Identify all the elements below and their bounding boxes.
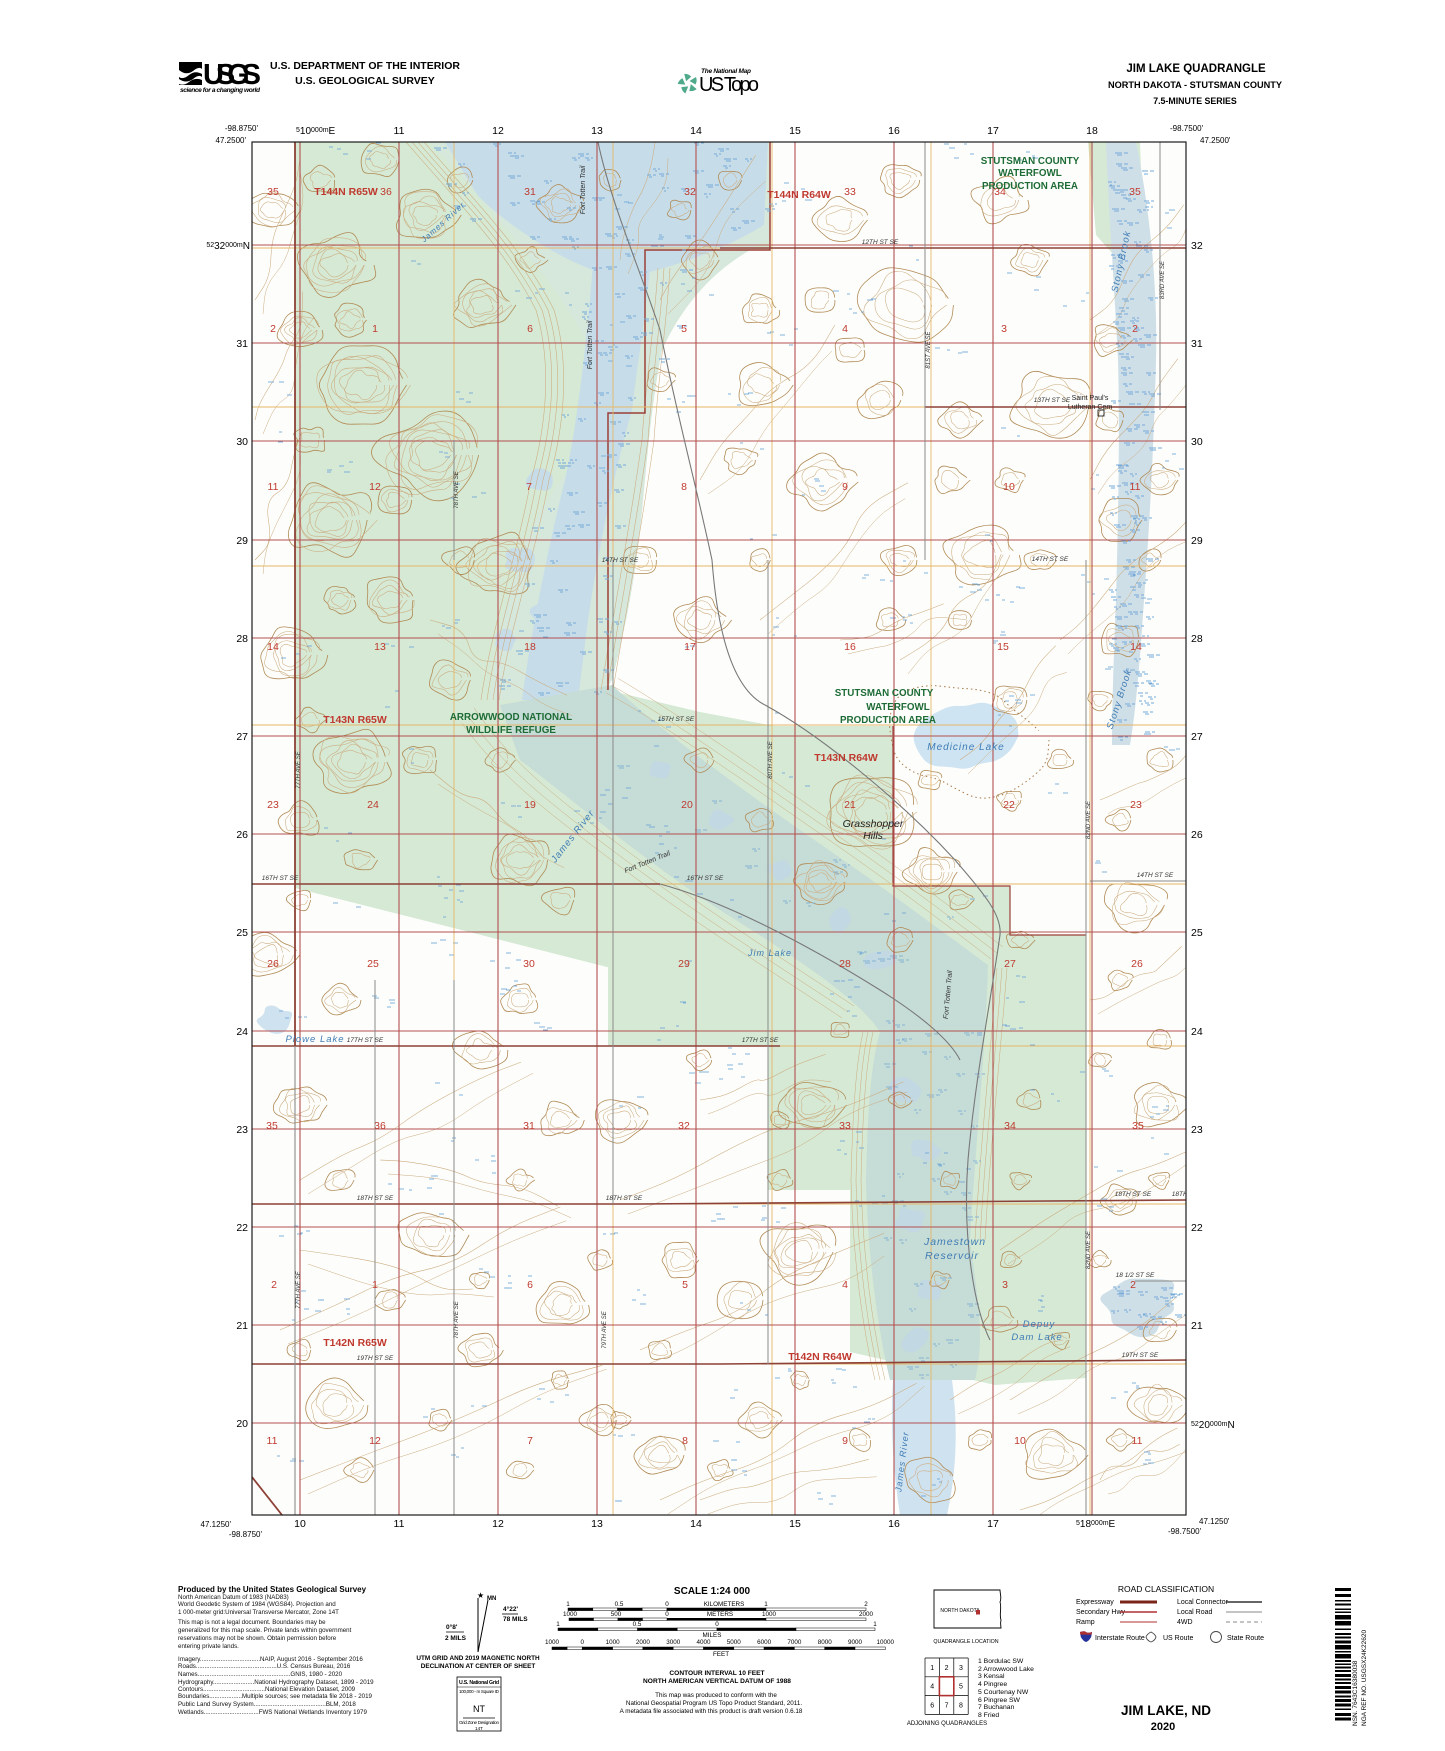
svg-text:82ND AVE SE: 82ND AVE SE [1086, 800, 1092, 839]
svg-text:14T: 14T [475, 1726, 483, 1731]
svg-text:State Route: State Route [1227, 1635, 1264, 1642]
svg-text:Saint Paul's: Saint Paul's [1072, 395, 1109, 402]
svg-text:11: 11 [394, 125, 405, 137]
svg-text:21: 21 [1191, 1320, 1203, 1332]
svg-text:10: 10 [1014, 1435, 1026, 1447]
svg-text:23: 23 [1191, 1124, 1203, 1136]
svg-text:27: 27 [1191, 731, 1203, 743]
svg-text:23: 23 [1130, 799, 1142, 811]
svg-text:2: 2 [271, 1279, 277, 1291]
svg-text:29: 29 [1191, 535, 1203, 547]
svg-text:-98.8750': -98.8750' [229, 1530, 263, 1539]
svg-text:9: 9 [842, 1435, 848, 1447]
svg-text:1: 1 [372, 323, 378, 335]
svg-text:27: 27 [1004, 958, 1016, 970]
svg-text:25: 25 [1191, 927, 1203, 939]
svg-text:19: 19 [524, 799, 536, 811]
svg-text:T142N R65W: T142N R65W [323, 1337, 387, 1349]
svg-text:WILDLIFE REFUGE: WILDLIFE REFUGE [466, 725, 556, 736]
svg-text:3 Kensal: 3 Kensal [978, 1673, 1005, 1680]
svg-text:12TH ST SE: 12TH ST SE [862, 239, 899, 246]
svg-text:T144N R65W: T144N R65W [314, 186, 378, 198]
svg-text:14: 14 [1130, 641, 1142, 653]
svg-text:23: 23 [267, 799, 279, 811]
svg-text:18TH ST SE: 18TH ST SE [357, 1195, 394, 1202]
svg-text:U.S. DEPARTMENT OF THE INTERIO: U.S. DEPARTMENT OF THE INTERIOR [270, 60, 460, 72]
svg-text:T143N R64W: T143N R64W [814, 752, 878, 764]
svg-text:31: 31 [523, 1120, 535, 1132]
svg-text:28: 28 [1191, 633, 1203, 645]
svg-text:0: 0 [665, 1611, 669, 1618]
svg-text:US Topo: US Topo [699, 74, 759, 96]
svg-text:77TH AVE SE: 77TH AVE SE [296, 1270, 302, 1308]
svg-text:0.5: 0.5 [633, 1621, 642, 1628]
svg-text:36: 36 [380, 186, 392, 198]
svg-text:PRODUCTION AREA: PRODUCTION AREA [982, 181, 1078, 192]
svg-text:US Route: US Route [1163, 1635, 1193, 1642]
svg-text:15TH ST SE: 15TH ST SE [658, 716, 695, 723]
svg-text:33: 33 [839, 1120, 851, 1132]
svg-text:2000: 2000 [859, 1611, 874, 1618]
svg-text:NORTH DAKOTA: NORTH DAKOTA [940, 1608, 980, 1614]
svg-text:7000: 7000 [787, 1639, 802, 1646]
svg-text:26: 26 [1131, 958, 1143, 970]
svg-text:3: 3 [1002, 1279, 1008, 1291]
svg-text:16: 16 [888, 125, 900, 137]
svg-text:Roads.........................: Roads...................................… [178, 1663, 351, 1670]
svg-text:4: 4 [930, 1684, 934, 1691]
svg-text:Boundaries...................M: Boundaries...................Multiple so… [178, 1693, 373, 1700]
svg-text:1: 1 [556, 1621, 560, 1628]
svg-text:1000: 1000 [606, 1639, 621, 1646]
svg-text:17TH ST SE: 17TH ST SE [742, 1037, 779, 1044]
svg-text:Grasshopper: Grasshopper [843, 818, 904, 830]
svg-text:1: 1 [930, 1665, 934, 1672]
svg-text:1 000-meter grid:Universal Tra: 1 000-meter grid:Universal Transverse Me… [178, 1609, 339, 1616]
svg-text:NSN. 7643C16380038: NSN. 7643C16380038 [1352, 1660, 1359, 1726]
svg-text:T144N R64W: T144N R64W [767, 189, 831, 201]
svg-text:6 Pingree SW: 6 Pingree SW [978, 1697, 1021, 1704]
svg-text:0: 0 [665, 1601, 669, 1608]
svg-text:14TH ST SE: 14TH ST SE [1032, 556, 1069, 563]
svg-text:7: 7 [527, 1435, 533, 1447]
svg-text:WATERFOWL: WATERFOWL [866, 702, 929, 713]
svg-text:5: 5 [959, 1684, 963, 1691]
svg-text:JIM LAKE QUADRANGLE: JIM LAKE QUADRANGLE [1126, 63, 1266, 75]
svg-text:Hills: Hills [863, 830, 884, 842]
svg-text:13: 13 [591, 1518, 603, 1530]
svg-text:36: 36 [374, 1120, 386, 1132]
svg-text:28: 28 [839, 958, 851, 970]
svg-text:Wetlands......................: Wetlands................................… [178, 1709, 367, 1716]
svg-text:T143N R65W: T143N R65W [323, 714, 387, 726]
svg-text:3: 3 [1001, 323, 1007, 335]
svg-text:Medicine Lake: Medicine Lake [927, 742, 1004, 753]
svg-text:Names.........................: Names...................................… [178, 1671, 343, 1678]
svg-text:Fort Totten Trail: Fort Totten Trail [587, 320, 594, 369]
svg-text:7 Buchanan: 7 Buchanan [978, 1704, 1015, 1711]
svg-text:7: 7 [945, 1703, 949, 1710]
svg-text:Contours......................: Contours................................… [178, 1686, 356, 1693]
svg-text:35: 35 [1129, 186, 1141, 198]
svg-text:9: 9 [842, 481, 848, 493]
svg-text:82ND AVE SE: 82ND AVE SE [1086, 1230, 1092, 1269]
svg-text:U.S. GEOLOGICAL SURVEY: U.S. GEOLOGICAL SURVEY [295, 75, 435, 87]
svg-text:1: 1 [566, 1601, 570, 1608]
svg-text:13: 13 [591, 125, 603, 137]
svg-text:0: 0 [715, 1621, 719, 1628]
svg-text:science for a changing world: science for a changing world [180, 87, 261, 94]
svg-text:Depuy: Depuy [1023, 1319, 1056, 1330]
svg-text:-98.7500': -98.7500' [1170, 124, 1204, 133]
svg-text:Local Connector: Local Connector [1177, 1599, 1229, 1606]
svg-text:10: 10 [294, 1518, 306, 1530]
svg-text:100,000 - m Square ID: 100,000 - m Square ID [459, 1689, 500, 1694]
svg-text:8: 8 [681, 481, 687, 493]
svg-text:4: 4 [842, 1279, 848, 1291]
svg-text:13: 13 [374, 641, 386, 653]
svg-text:generalized for this map scale: generalized for this map scale. Private … [178, 1627, 352, 1634]
svg-text:29: 29 [236, 535, 248, 547]
svg-text:47.1250': 47.1250' [201, 1520, 232, 1529]
svg-text:NT: NT [473, 1704, 485, 1714]
svg-text:26: 26 [267, 958, 279, 970]
svg-text:4 Pingree: 4 Pingree [978, 1681, 1007, 1688]
svg-text:35: 35 [266, 1120, 278, 1132]
svg-text:Fort Totten Trail: Fort Totten Trail [580, 165, 587, 214]
svg-text:Jim Lake: Jim Lake [747, 948, 792, 958]
svg-text:26: 26 [1191, 829, 1203, 841]
svg-text:80TH AVE SE: 80TH AVE SE [768, 740, 774, 778]
svg-text:22: 22 [1003, 799, 1015, 811]
svg-text:16TH ST SE: 16TH ST SE [687, 875, 724, 882]
svg-text:14: 14 [690, 1518, 702, 1530]
svg-text:QUADRANGLE LOCATION: QUADRANGLE LOCATION [933, 1639, 998, 1645]
svg-text:Plowe Lake: Plowe Lake [285, 1034, 344, 1045]
svg-text:Expressway: Expressway [1076, 1599, 1114, 1606]
svg-text:27: 27 [236, 731, 248, 743]
svg-text:FEET: FEET [713, 1651, 729, 1658]
svg-text:Reservoir: Reservoir [925, 1250, 979, 1262]
svg-text:78TH AVE SE: 78TH AVE SE [454, 1300, 460, 1338]
svg-text:12: 12 [492, 1518, 504, 1530]
svg-text:16: 16 [844, 641, 856, 653]
svg-text:STUTSMAN COUNTY: STUTSMAN COUNTY [981, 156, 1080, 167]
svg-text:World Geodetic System of 1984: World Geodetic System of 1984 (WGS84). P… [178, 1601, 336, 1608]
svg-text:17: 17 [987, 125, 999, 137]
svg-text:1000: 1000 [545, 1639, 560, 1646]
svg-text:21: 21 [844, 799, 856, 811]
svg-text:32: 32 [1191, 240, 1203, 252]
svg-text:16TH ST SE: 16TH ST SE [262, 875, 299, 882]
svg-text:7: 7 [526, 481, 532, 493]
svg-text:DECLINATION AT CENTER OF SHEET: DECLINATION AT CENTER OF SHEET [421, 1663, 536, 1670]
svg-text:2000: 2000 [636, 1639, 651, 1646]
svg-text:CONTOUR INTERVAL 10 FEET: CONTOUR INTERVAL 10 FEET [669, 1670, 764, 1677]
svg-text:500: 500 [611, 1611, 622, 1618]
svg-text:33: 33 [844, 186, 856, 198]
svg-text:Dam Lake: Dam Lake [1011, 1332, 1062, 1343]
svg-text:14TH ST SE: 14TH ST SE [602, 557, 639, 564]
svg-text:6: 6 [527, 1279, 533, 1291]
svg-text:47.1250': 47.1250' [1199, 1517, 1230, 1526]
svg-text:2: 2 [270, 323, 276, 335]
svg-text:0: 0 [581, 1639, 585, 1646]
svg-text:5: 5 [682, 1279, 688, 1291]
svg-text:Interstate Route: Interstate Route [1095, 1635, 1145, 1642]
svg-text:8: 8 [959, 1703, 963, 1710]
svg-text:12: 12 [369, 1435, 381, 1447]
svg-text:17: 17 [684, 641, 696, 653]
svg-text:4: 4 [842, 323, 848, 335]
svg-text:MILES: MILES [703, 1632, 722, 1639]
svg-text:2: 2 [1130, 1279, 1136, 1291]
svg-text:Ramp: Ramp [1076, 1619, 1095, 1626]
svg-text:31: 31 [236, 338, 248, 350]
svg-text:8 Fried: 8 Fried [978, 1712, 999, 1719]
svg-text:78TH AVE SE: 78TH AVE SE [454, 470, 460, 508]
svg-text:12: 12 [369, 481, 381, 493]
svg-text:13TH ST SE: 13TH ST SE [1034, 397, 1071, 404]
svg-text:32: 32 [678, 1120, 690, 1132]
svg-text:1: 1 [764, 1601, 768, 1608]
svg-text:5: 5 [681, 323, 687, 335]
svg-text:18TH ST SE: 18TH ST SE [606, 1195, 643, 1202]
svg-text:20: 20 [236, 1418, 248, 1430]
svg-text:19TH ST SE: 19TH ST SE [357, 1355, 394, 1362]
svg-text:12: 12 [492, 125, 504, 137]
svg-text:30: 30 [236, 436, 248, 448]
svg-text:WATERFOWL: WATERFOWL [998, 168, 1061, 179]
svg-text:18TH ST SE: 18TH ST SE [1115, 1191, 1152, 1198]
svg-text:24: 24 [367, 799, 379, 811]
svg-text:11: 11 [267, 1435, 278, 1447]
svg-text:Grid Zone Designation: Grid Zone Designation [459, 1720, 499, 1725]
svg-text:Public Land Survey System.....: Public Land Survey System...............… [178, 1701, 356, 1708]
svg-text:This map was produced to confo: This map was produced to conform with th… [655, 1692, 777, 1699]
svg-text:28: 28 [236, 633, 248, 645]
svg-text:10: 10 [1003, 481, 1015, 493]
svg-text:35: 35 [267, 186, 279, 198]
svg-text:METERS: METERS [707, 1611, 733, 1618]
svg-text:15: 15 [789, 125, 801, 137]
svg-text:T142N R64W: T142N R64W [788, 1351, 852, 1363]
svg-text:NORTH AMERICAN VERTICAL DATUM: NORTH AMERICAN VERTICAL DATUM OF 1988 [643, 1678, 791, 1685]
svg-text:-98.7500': -98.7500' [1168, 1527, 1202, 1536]
svg-text:20: 20 [681, 799, 693, 811]
svg-text:4WD: 4WD [1177, 1619, 1193, 1626]
svg-text:ARROWWOOD NATIONAL: ARROWWOOD NATIONAL [450, 712, 572, 723]
svg-text:34: 34 [1004, 1120, 1016, 1132]
svg-text:32: 32 [684, 186, 696, 198]
svg-text:Lutheran Cem: Lutheran Cem [1068, 404, 1113, 411]
svg-text:U.S. National Grid: U.S. National Grid [459, 1680, 499, 1686]
svg-text:30: 30 [1191, 436, 1203, 448]
svg-text:2: 2 [1132, 323, 1138, 335]
svg-text:14TH ST SE: 14TH ST SE [1137, 872, 1174, 879]
svg-text:2020: 2020 [1151, 1721, 1175, 1733]
svg-text:81ST AVE SE: 81ST AVE SE [926, 330, 932, 368]
svg-text:16: 16 [888, 1518, 900, 1530]
svg-text:79TH AVE SE: 79TH AVE SE [602, 1310, 608, 1348]
svg-text:SCALE 1:24 000: SCALE 1:24 000 [674, 1586, 751, 1597]
svg-text:23: 23 [236, 1124, 248, 1136]
svg-text:9000: 9000 [848, 1639, 863, 1646]
svg-text:24: 24 [236, 1026, 248, 1038]
svg-text:29: 29 [678, 958, 690, 970]
svg-text:6: 6 [527, 323, 533, 335]
svg-text:North American Datum of 1983 (: North American Datum of 1983 (NAD83) [178, 1594, 289, 1601]
svg-text:47.2500': 47.2500' [1200, 136, 1231, 145]
svg-text:47.2500': 47.2500' [216, 136, 247, 145]
svg-text:This map is not a legal docume: This map is not a legal document. Bounda… [178, 1619, 326, 1626]
svg-text:11: 11 [268, 481, 279, 493]
svg-text:-98.8750': -98.8750' [225, 124, 259, 133]
svg-text:1: 1 [873, 1621, 877, 1628]
svg-text:1 Bordulac SW: 1 Bordulac SW [978, 1658, 1024, 1665]
svg-text:35: 35 [1132, 1120, 1144, 1132]
svg-text:1: 1 [372, 1279, 378, 1291]
svg-text:31: 31 [524, 186, 536, 198]
svg-text:NGA REF NO. USGSX24K22620: NGA REF NO. USGSX24K22620 [1361, 1630, 1368, 1726]
svg-text:2 Arrowwood Lake: 2 Arrowwood Lake [978, 1666, 1034, 1673]
svg-text:31: 31 [1191, 338, 1203, 350]
svg-text:entering private lands.: entering private lands. [178, 1643, 239, 1650]
svg-text:A metadata file associated wit: A metadata file associated with this pro… [620, 1708, 803, 1715]
svg-text:18: 18 [1086, 125, 1098, 137]
svg-text:14: 14 [267, 641, 279, 653]
svg-text:National Geospatial Program US: National Geospatial Program US Topo Prod… [626, 1700, 802, 1707]
svg-text:Secondary Hwy: Secondary Hwy [1076, 1609, 1126, 1616]
svg-text:0°8': 0°8' [446, 1623, 458, 1631]
svg-text:19TH ST SE: 19TH ST SE [1122, 1352, 1159, 1359]
svg-text:78 MILS: 78 MILS [503, 1616, 528, 1623]
svg-text:JIM LAKE, ND: JIM LAKE, ND [1121, 1703, 1211, 1718]
svg-text:KILOMETERS: KILOMETERS [704, 1601, 745, 1608]
svg-text:5000: 5000 [727, 1639, 742, 1646]
svg-text:17: 17 [987, 1518, 999, 1530]
svg-text:ADJOINING QUADRANGLES: ADJOINING QUADRANGLES [907, 1721, 987, 1727]
svg-text:reservations may not be shown.: reservations may not be shown. Obtain pe… [178, 1635, 337, 1642]
svg-text:3000: 3000 [666, 1639, 681, 1646]
svg-text:25: 25 [236, 927, 248, 939]
svg-text:5 Courtenay NW: 5 Courtenay NW [978, 1689, 1029, 1696]
svg-text:15: 15 [789, 1518, 801, 1530]
svg-text:4000: 4000 [696, 1639, 711, 1646]
svg-text:ROAD CLASSIFICATION: ROAD CLASSIFICATION [1118, 1584, 1214, 1594]
svg-text:77TH AVE SE: 77TH AVE SE [296, 750, 302, 788]
svg-text:Imagery.......................: Imagery.................................… [178, 1656, 363, 1663]
svg-text:15: 15 [997, 641, 1009, 653]
svg-text:25: 25 [367, 958, 379, 970]
svg-text:22: 22 [1191, 1222, 1203, 1234]
svg-text:83RD AVE SE: 83RD AVE SE [1160, 260, 1166, 299]
svg-text:1000: 1000 [563, 1611, 578, 1618]
svg-text:★: ★ [477, 1591, 484, 1600]
svg-text:18 1/2 ST SE: 18 1/2 ST SE [1116, 1272, 1155, 1279]
svg-text:Local Road: Local Road [1177, 1609, 1213, 1616]
svg-text:21: 21 [236, 1320, 248, 1332]
svg-text:1000: 1000 [762, 1611, 777, 1618]
svg-text:8000: 8000 [818, 1639, 833, 1646]
svg-text:6000: 6000 [757, 1639, 772, 1646]
svg-text:4°22': 4°22' [503, 1605, 518, 1613]
svg-text:STUTSMAN COUNTY: STUTSMAN COUNTY [835, 688, 934, 699]
svg-text:26: 26 [236, 829, 248, 841]
svg-text:MN: MN [487, 1596, 496, 1602]
svg-text:14: 14 [690, 125, 702, 137]
svg-text:NORTH DAKOTA - STUTSMAN COUNTY: NORTH DAKOTA - STUTSMAN COUNTY [1108, 80, 1282, 90]
svg-text:0.5: 0.5 [615, 1601, 624, 1608]
svg-text:24: 24 [1191, 1026, 1203, 1038]
svg-text:11: 11 [1130, 481, 1141, 493]
svg-text:3: 3 [959, 1665, 963, 1672]
svg-text:10000: 10000 [877, 1639, 895, 1646]
svg-text:11: 11 [394, 1518, 405, 1530]
svg-text:18: 18 [524, 641, 536, 653]
svg-text:2: 2 [945, 1665, 949, 1672]
svg-text:6: 6 [930, 1703, 934, 1710]
svg-text:PRODUCTION AREA: PRODUCTION AREA [840, 715, 936, 726]
svg-text:7.5-MINUTE SERIES: 7.5-MINUTE SERIES [1153, 96, 1237, 106]
svg-text:UTM GRID AND 2019 MAGNETIC NOR: UTM GRID AND 2019 MAGNETIC NORTH [416, 1655, 540, 1662]
svg-text:17TH ST SE: 17TH ST SE [347, 1037, 384, 1044]
svg-text:11: 11 [1132, 1435, 1143, 1447]
svg-text:2: 2 [864, 1601, 868, 1608]
svg-text:Produced by the United States: Produced by the United States Geological… [178, 1585, 367, 1594]
svg-text:2 MILS: 2 MILS [445, 1635, 467, 1642]
svg-text:22: 22 [236, 1222, 248, 1234]
svg-text:8: 8 [682, 1435, 688, 1447]
svg-text:30: 30 [523, 958, 535, 970]
svg-text:Hydrography...................: Hydrography........................Natio… [178, 1679, 374, 1686]
svg-text:Jamestown: Jamestown [923, 1236, 986, 1248]
